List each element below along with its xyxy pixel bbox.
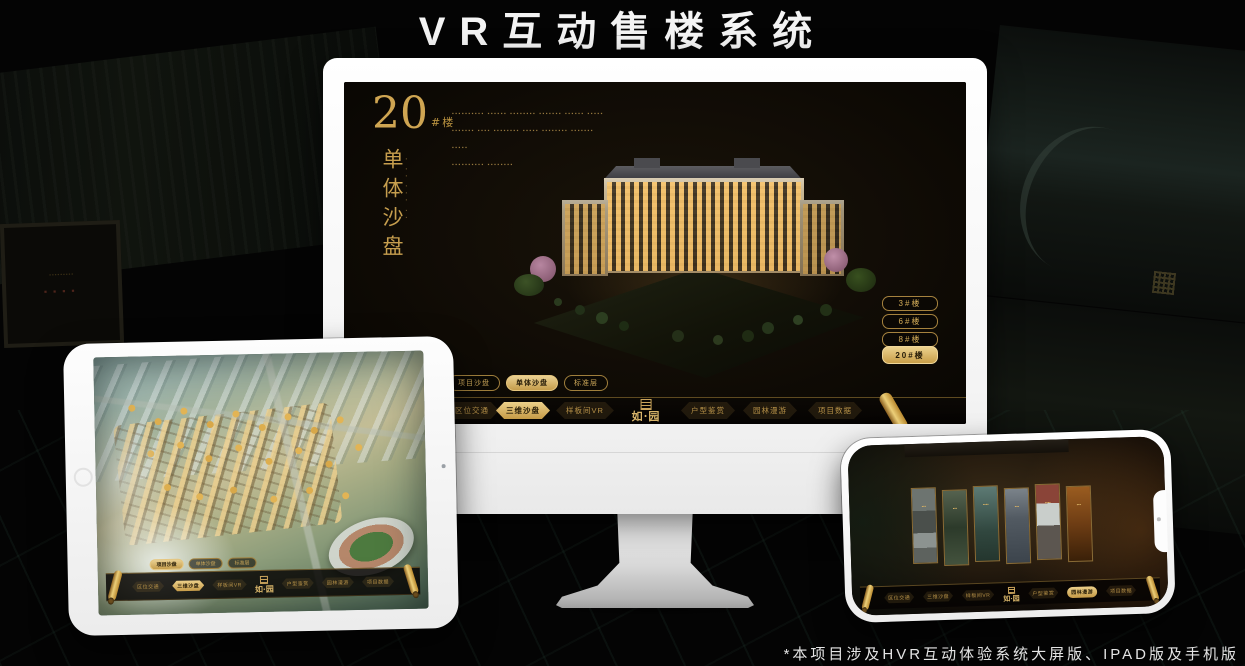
render-shape: [514, 274, 544, 296]
render-shape: [554, 298, 562, 306]
render-shape: [604, 178, 804, 273]
render-shape: [734, 158, 760, 168]
render-shape: [846, 268, 876, 292]
nav-item-garden-tour[interactable]: 园林漫游: [1067, 586, 1097, 598]
tab-project-sandtable[interactable]: 项目沙盘: [150, 559, 184, 571]
nav-item-project-data[interactable]: 项目数据: [808, 402, 862, 419]
mode-tabs: 项目沙盘 单体沙盘 标准层: [448, 375, 608, 391]
ruyuan-logo: 如·园: [255, 575, 274, 592]
scene-panel[interactable]: ▪▪▪: [1066, 485, 1093, 562]
nav-item-floorplan[interactable]: 户型鉴赏: [282, 577, 314, 589]
building-render: [494, 148, 904, 388]
scroll-icon[interactable]: [403, 563, 420, 595]
tab-project-sandtable[interactable]: 项目沙盘: [448, 375, 500, 391]
nav-item-project-data[interactable]: 项目数据: [362, 576, 394, 588]
tab-single-sandtable[interactable]: 单体沙盘: [189, 558, 223, 570]
render-shape: [824, 248, 848, 272]
scroll-icon[interactable]: [1145, 575, 1160, 602]
ruyuan-seal-icon: [641, 399, 652, 410]
scene-panel[interactable]: ▪▪▪▪: [1035, 483, 1062, 560]
background-seal-icon: [1152, 271, 1176, 295]
nav-item-showroom-vr[interactable]: 样板间VR: [556, 402, 614, 419]
nav-item-showroom-vr[interactable]: 样板间VR: [212, 579, 247, 591]
plaque-small-text: ▪▪▪▪▪▪▪▪▪: [49, 272, 74, 279]
scene-panel[interactable]: ▪▪▪: [1004, 487, 1031, 564]
nav-item-location[interactable]: 区位交通: [884, 591, 914, 603]
ruyuan-logo: 如·园: [632, 399, 661, 422]
block-subtitle-caption: ▪ ▪▪ ▪▪▪ ▪▪: [404, 156, 409, 221]
nav-item-location[interactable]: 区位交通: [132, 581, 164, 593]
tablet-screen: 项目沙盘 单体沙盘 标准层 区位交通 三维沙盘 样板间VR 如·园 户型鉴赏 园…: [93, 351, 428, 616]
block-heading: 20 #楼: [372, 92, 455, 136]
floor-button-3[interactable]: 3#楼: [882, 296, 938, 311]
background-plaque: ▪▪▪▪▪▪▪▪▪ ▪▪▪▪: [0, 220, 124, 348]
tablet-camera-icon: [442, 464, 446, 468]
scroll-icon[interactable]: [107, 570, 123, 602]
floor-button-8[interactable]: 8#楼: [882, 332, 938, 347]
floor-button-6[interactable]: 6#楼: [882, 314, 938, 329]
floor-button-20[interactable]: 20#楼: [882, 346, 938, 364]
ruyuan-logo: 如·园: [1003, 586, 1020, 602]
nav-item-floorplan[interactable]: 户型鉴赏: [1028, 587, 1058, 599]
nav-item-3d-sandtable[interactable]: 三维沙盘: [496, 402, 550, 419]
phone-notch: [1153, 490, 1168, 552]
nav-item-garden-tour[interactable]: 园林漫游: [743, 402, 797, 419]
tab-single-sandtable[interactable]: 单体沙盘: [506, 375, 558, 391]
block-subtitle: 单体沙盘: [377, 148, 407, 264]
nav-item-project-data[interactable]: 项目数据: [1106, 585, 1136, 597]
tab-standard-floor[interactable]: 标准层: [564, 375, 608, 391]
tab-standard-floor[interactable]: 标准层: [228, 557, 257, 569]
mode-tabs: 项目沙盘 单体沙盘 标准层: [150, 557, 257, 570]
phone-mockup: ▪▪▪ ▪▪▪ ▪▪▪▪ ▪▪▪ ▪▪▪▪ ▪▪▪ 区位交通 三维沙盘 样板间V…: [840, 429, 1176, 623]
nav-item-showroom-vr[interactable]: 样板间VR: [962, 589, 995, 601]
render-shape: [634, 158, 660, 168]
page-title: VR互动售楼系统: [0, 0, 1245, 56]
nav-item-garden-tour[interactable]: 园林漫游: [322, 577, 354, 589]
scene-gallery: ▪▪▪ ▪▪▪ ▪▪▪▪ ▪▪▪ ▪▪▪▪ ▪▪▪: [911, 482, 1093, 564]
render-shape: [562, 200, 608, 276]
nav-item-floorplan[interactable]: 户型鉴赏: [681, 402, 735, 419]
nav-item-3d-sandtable[interactable]: 三维沙盘: [923, 590, 953, 602]
phone-screen: ▪▪▪ ▪▪▪ ▪▪▪▪ ▪▪▪ ▪▪▪▪ ▪▪▪ 区位交通 三维沙盘 样板间V…: [847, 436, 1168, 616]
scene-panel[interactable]: ▪▪▪▪: [973, 485, 1000, 562]
description-line: ▪▪▪▪▪▪▪ ▪▪▪▪ ▪▪▪▪▪▪▪▪ ▪▪▪▪▪ ▪▪▪▪▪▪▪▪ ▪▪▪…: [452, 123, 722, 140]
ruyuan-seal-icon: [1008, 586, 1015, 593]
description-line: ▪▪▪▪▪▪▪▪▪▪ ▪▪▪▪▪▪ ▪▪▪▪▪▪▪▪ ▪▪▪▪▪▪▪ ▪▪▪▪▪…: [452, 106, 722, 123]
block-number: 20: [372, 92, 428, 136]
scroll-icon[interactable]: [861, 584, 874, 611]
plaque-title-text: ▪▪▪▪: [44, 285, 81, 296]
background-photo-right-top: [972, 25, 1245, 325]
scene-panel[interactable]: ▪▪▪: [911, 487, 938, 564]
footnote: *本项目涉及HVR互动体验系统大屏版、IPAD版及手机版: [784, 643, 1239, 664]
scene-panel[interactable]: ▪▪▪: [942, 489, 969, 566]
tablet-mockup: 项目沙盘 单体沙盘 标准层 区位交通 三维沙盘 样板间VR 如·园 户型鉴赏 园…: [63, 336, 459, 636]
ruyuan-seal-icon: [260, 575, 268, 583]
nav-item-3d-sandtable[interactable]: 三维沙盘: [172, 580, 204, 592]
